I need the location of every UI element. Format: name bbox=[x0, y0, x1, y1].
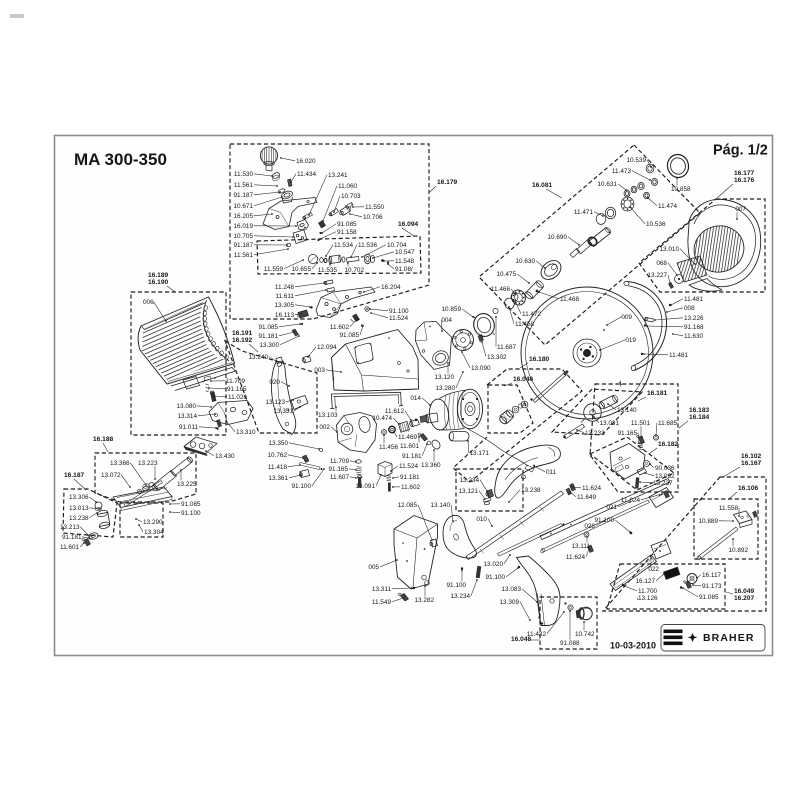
svg-text:13.140: 13.140 bbox=[617, 407, 637, 414]
svg-text:13.031: 13.031 bbox=[599, 420, 619, 427]
svg-text:10-03-2010: 10-03-2010 bbox=[610, 641, 656, 651]
svg-text:11.473: 11.473 bbox=[612, 168, 632, 175]
svg-text:12.085: 12.085 bbox=[397, 502, 417, 509]
svg-text:11.530: 11.530 bbox=[234, 171, 254, 178]
svg-text:16.094: 16.094 bbox=[398, 221, 419, 228]
svg-text:16.081: 16.081 bbox=[532, 182, 553, 189]
svg-text:10.858: 10.858 bbox=[671, 186, 691, 193]
svg-text:10.547: 10.547 bbox=[395, 249, 415, 256]
svg-text:91.165: 91.165 bbox=[328, 466, 348, 473]
svg-text:16.117: 16.117 bbox=[702, 572, 722, 579]
svg-text:10.859: 10.859 bbox=[441, 306, 461, 313]
svg-text:11.469: 11.469 bbox=[398, 434, 418, 441]
svg-text:11.709: 11.709 bbox=[226, 378, 246, 385]
svg-text:10.705: 10.705 bbox=[233, 233, 253, 240]
svg-text:11.624: 11.624 bbox=[621, 497, 641, 504]
svg-text:91.168: 91.168 bbox=[684, 324, 704, 331]
svg-text:16.187: 16.187 bbox=[64, 472, 85, 479]
svg-text:11.611: 11.611 bbox=[275, 293, 294, 300]
svg-text:16.183: 16.183 bbox=[689, 407, 710, 414]
svg-text:13.282: 13.282 bbox=[414, 597, 434, 604]
svg-text:10.702: 10.702 bbox=[344, 267, 364, 274]
svg-text:10.539: 10.539 bbox=[626, 157, 646, 164]
svg-text:13.234: 13.234 bbox=[450, 593, 470, 600]
svg-text:13.300: 13.300 bbox=[259, 342, 279, 349]
svg-text:11.607: 11.607 bbox=[330, 474, 350, 481]
svg-text:003: 003 bbox=[314, 367, 325, 374]
svg-text:11.248: 11.248 bbox=[275, 284, 295, 291]
svg-text:13.225: 13.225 bbox=[177, 481, 197, 488]
svg-text:13.280: 13.280 bbox=[435, 385, 455, 392]
svg-text:16.180: 16.180 bbox=[529, 356, 550, 363]
svg-text:13.020: 13.020 bbox=[483, 561, 503, 568]
svg-text:11.709: 11.709 bbox=[330, 458, 350, 465]
svg-text:008: 008 bbox=[684, 305, 695, 312]
svg-text:13.302: 13.302 bbox=[487, 354, 507, 361]
svg-text:13.350: 13.350 bbox=[268, 440, 288, 447]
svg-text:11.700: 11.700 bbox=[638, 588, 658, 595]
svg-text:11.434: 11.434 bbox=[297, 171, 317, 178]
svg-text:16.049: 16.049 bbox=[734, 588, 755, 595]
svg-text:11.685: 11.685 bbox=[658, 420, 678, 427]
svg-text:11.474: 11.474 bbox=[658, 203, 678, 210]
svg-text:10.703: 10.703 bbox=[341, 193, 361, 200]
svg-text:006: 006 bbox=[143, 299, 154, 306]
svg-text:10.889: 10.889 bbox=[698, 518, 718, 525]
svg-text:11.501: 11.501 bbox=[631, 420, 651, 427]
svg-text:MA 300-350: MA 300-350 bbox=[74, 150, 167, 169]
svg-text:11.624: 11.624 bbox=[582, 485, 602, 492]
svg-text:13.126: 13.126 bbox=[638, 595, 658, 602]
svg-text:11.601: 11.601 bbox=[60, 544, 80, 551]
svg-text:BRAHER: BRAHER bbox=[703, 632, 755, 644]
svg-text:11.458: 11.458 bbox=[515, 321, 535, 328]
svg-text:16.113: 16.113 bbox=[275, 312, 295, 319]
svg-text:13.092: 13.092 bbox=[655, 473, 675, 480]
svg-text:16.182: 16.182 bbox=[658, 441, 679, 448]
svg-text:16.177: 16.177 bbox=[734, 170, 755, 177]
svg-text:019: 019 bbox=[625, 337, 636, 344]
svg-text:91.085: 91.085 bbox=[337, 221, 357, 228]
svg-text:13.306: 13.306 bbox=[69, 494, 89, 501]
svg-text:16.020: 16.020 bbox=[296, 158, 316, 165]
svg-text:13.240: 13.240 bbox=[248, 354, 268, 361]
svg-text:91.187: 91.187 bbox=[233, 242, 253, 249]
svg-text:11.561: 11.561 bbox=[234, 182, 254, 189]
svg-text:91.100: 91.100 bbox=[485, 574, 505, 581]
svg-text:16.019: 16.019 bbox=[233, 223, 253, 230]
svg-text:13.226: 13.226 bbox=[684, 315, 704, 322]
svg-text:13.360: 13.360 bbox=[421, 462, 441, 469]
svg-text:10.630: 10.630 bbox=[515, 258, 535, 265]
svg-text:13.103: 13.103 bbox=[318, 412, 338, 419]
svg-text:16.190: 16.190 bbox=[148, 279, 169, 286]
svg-text:13.140: 13.140 bbox=[430, 502, 450, 509]
svg-text:16.207: 16.207 bbox=[734, 595, 755, 602]
svg-text:91.100: 91.100 bbox=[446, 582, 466, 589]
svg-text:91.011: 91.011 bbox=[179, 424, 199, 431]
svg-text:10.742: 10.742 bbox=[575, 631, 595, 638]
svg-text:91.181: 91.181 bbox=[400, 474, 420, 481]
svg-text:10.474: 10.474 bbox=[372, 415, 392, 422]
svg-text:11.456: 11.456 bbox=[379, 444, 399, 451]
svg-text:11.601: 11.601 bbox=[400, 443, 420, 450]
svg-text:022: 022 bbox=[648, 566, 659, 573]
svg-text:11.060: 11.060 bbox=[338, 183, 358, 190]
svg-text:91.100: 91.100 bbox=[291, 483, 311, 490]
svg-text:13.171: 13.171 bbox=[469, 450, 489, 457]
svg-text:10.762: 10.762 bbox=[267, 452, 287, 459]
svg-text:13.120: 13.120 bbox=[434, 374, 454, 381]
svg-text:13.090: 13.090 bbox=[471, 365, 491, 372]
svg-text:13.361: 13.361 bbox=[268, 475, 288, 482]
svg-text:90.036: 90.036 bbox=[655, 465, 675, 472]
svg-text:11.550: 11.550 bbox=[365, 204, 385, 211]
svg-text:16.204: 16.204 bbox=[381, 284, 401, 291]
svg-text:91.173: 91.173 bbox=[702, 583, 722, 590]
svg-text:007: 007 bbox=[735, 206, 746, 213]
svg-text:16.189: 16.189 bbox=[148, 272, 169, 279]
svg-text:11.630: 11.630 bbox=[684, 333, 704, 340]
svg-text:009: 009 bbox=[621, 314, 632, 321]
svg-text:16.127: 16.127 bbox=[635, 578, 655, 585]
svg-text:16.179: 16.179 bbox=[437, 179, 458, 186]
svg-text:10.690: 10.690 bbox=[547, 234, 567, 241]
svg-text:13.310: 13.310 bbox=[236, 429, 256, 436]
svg-text:10.892: 10.892 bbox=[728, 547, 748, 554]
svg-text:13.314: 13.314 bbox=[177, 413, 197, 420]
svg-text:11.524: 11.524 bbox=[389, 315, 409, 322]
svg-text:11.418: 11.418 bbox=[268, 464, 288, 471]
svg-text:91.165: 91.165 bbox=[617, 430, 637, 437]
svg-text:13.223: 13.223 bbox=[138, 460, 158, 467]
svg-text:13.238: 13.238 bbox=[521, 487, 541, 494]
svg-text:11.466: 11.466 bbox=[491, 286, 511, 293]
svg-text:10.671: 10.671 bbox=[233, 203, 253, 210]
svg-text:91.085: 91.085 bbox=[699, 594, 719, 601]
svg-text:16.181: 16.181 bbox=[647, 390, 668, 397]
svg-text:13.072: 13.072 bbox=[101, 472, 121, 479]
svg-text:13.111: 13.111 bbox=[571, 543, 590, 550]
svg-text:11.481: 11.481 bbox=[669, 352, 689, 359]
svg-text:005: 005 bbox=[368, 564, 379, 571]
svg-text:10.536: 10.536 bbox=[646, 221, 666, 228]
svg-text:10.704: 10.704 bbox=[387, 242, 407, 249]
svg-text:12.094: 12.094 bbox=[317, 344, 337, 351]
svg-text:16.188: 16.188 bbox=[93, 436, 114, 443]
svg-text:004: 004 bbox=[441, 317, 452, 324]
svg-text:13.241: 13.241 bbox=[328, 172, 348, 179]
svg-text:16.191: 16.191 bbox=[232, 330, 253, 337]
svg-text:16.106: 16.106 bbox=[738, 485, 759, 492]
svg-text:010: 010 bbox=[476, 516, 487, 523]
svg-text:11.602: 11.602 bbox=[401, 484, 421, 491]
svg-text:11.602: 11.602 bbox=[330, 324, 350, 331]
svg-text:11.612: 11.612 bbox=[385, 408, 405, 415]
svg-text:020: 020 bbox=[269, 379, 280, 386]
svg-text:002: 002 bbox=[319, 424, 330, 431]
svg-text:Pág. 1/2: Pág. 1/2 bbox=[713, 143, 768, 159]
svg-text:11.549: 11.549 bbox=[372, 599, 392, 606]
svg-text:11.524: 11.524 bbox=[399, 463, 419, 470]
svg-text:11.471: 11.471 bbox=[574, 209, 594, 216]
svg-text:13.304: 13.304 bbox=[144, 529, 164, 536]
svg-text:10.655: 10.655 bbox=[291, 266, 311, 273]
svg-text:13.238: 13.238 bbox=[69, 515, 89, 522]
svg-text:16.167: 16.167 bbox=[741, 460, 762, 467]
svg-text:13.013: 13.013 bbox=[69, 505, 89, 512]
svg-text:13.309: 13.309 bbox=[499, 599, 519, 606]
svg-text:011: 011 bbox=[546, 469, 557, 476]
svg-text:16.102: 16.102 bbox=[741, 453, 762, 460]
svg-text:91.085: 91.085 bbox=[181, 501, 201, 508]
svg-text:10.631: 10.631 bbox=[597, 181, 617, 188]
svg-text:91.100: 91.100 bbox=[389, 308, 409, 315]
svg-text:13.083: 13.083 bbox=[501, 586, 521, 593]
svg-text:91.187: 91.187 bbox=[233, 192, 253, 199]
svg-text:16.192: 16.192 bbox=[232, 337, 253, 344]
svg-text:91.085: 91.085 bbox=[258, 324, 278, 331]
svg-text:91.181: 91.181 bbox=[258, 333, 278, 340]
svg-text:91.088: 91.088 bbox=[560, 640, 580, 647]
svg-text:13.351: 13.351 bbox=[273, 408, 293, 415]
svg-text:11.535: 11.535 bbox=[318, 267, 338, 274]
svg-text:11.468: 11.468 bbox=[560, 296, 580, 303]
svg-text:11.534: 11.534 bbox=[334, 242, 354, 249]
svg-text:16.184: 16.184 bbox=[689, 414, 710, 421]
svg-text:11.649: 11.649 bbox=[577, 494, 597, 501]
svg-text:13.123: 13.123 bbox=[265, 399, 285, 406]
svg-text:16.205: 16.205 bbox=[233, 213, 253, 220]
svg-text:11.472: 11.472 bbox=[522, 311, 542, 318]
svg-text:10.475: 10.475 bbox=[496, 271, 516, 278]
svg-text:91.181: 91.181 bbox=[402, 453, 422, 460]
svg-text:91.165: 91.165 bbox=[227, 386, 247, 393]
svg-text:11.432: 11.432 bbox=[527, 631, 547, 638]
svg-text:11.536: 11.536 bbox=[358, 242, 378, 249]
svg-text:11.561: 11.561 bbox=[234, 252, 254, 259]
svg-text:11.548: 11.548 bbox=[395, 258, 415, 265]
svg-text:11.687: 11.687 bbox=[497, 344, 517, 351]
svg-text:13.080: 13.080 bbox=[176, 403, 196, 410]
svg-text:91.100: 91.100 bbox=[181, 510, 201, 517]
svg-text:91.181: 91.181 bbox=[62, 534, 82, 541]
svg-text:068: 068 bbox=[656, 260, 667, 267]
svg-text:014: 014 bbox=[410, 395, 421, 402]
svg-text:10.706: 10.706 bbox=[363, 214, 383, 221]
svg-text:13.091: 13.091 bbox=[355, 483, 375, 490]
svg-text:91.08/: 91.08/ bbox=[395, 266, 413, 273]
svg-text:13.290: 13.290 bbox=[143, 519, 163, 526]
svg-text:13.366: 13.366 bbox=[110, 460, 130, 467]
svg-text:13.237: 13.237 bbox=[653, 480, 673, 487]
svg-text:11.481: 11.481 bbox=[684, 296, 704, 303]
svg-text:11.558: 11.558 bbox=[719, 505, 739, 512]
svg-text:13.430: 13.430 bbox=[215, 453, 235, 460]
svg-text:13.227: 13.227 bbox=[647, 272, 667, 279]
svg-text:16.176: 16.176 bbox=[734, 177, 755, 184]
svg-text:11.026: 11.026 bbox=[228, 394, 248, 401]
svg-text:13.305: 13.305 bbox=[274, 302, 294, 309]
svg-text:13.311: 13.311 bbox=[372, 586, 392, 593]
svg-text:11.624: 11.624 bbox=[566, 554, 586, 561]
svg-text:91.158: 91.158 bbox=[337, 229, 357, 236]
svg-text:13.233: 13.233 bbox=[585, 430, 605, 437]
svg-text:91.085: 91.085 bbox=[339, 332, 359, 339]
svg-text:11.559: 11.559 bbox=[264, 266, 284, 273]
svg-text:028: 028 bbox=[584, 523, 595, 530]
svg-text:13.213: 13.213 bbox=[60, 524, 80, 531]
svg-text:13.121: 13.121 bbox=[458, 488, 478, 495]
svg-text:13.010: 13.010 bbox=[659, 246, 679, 253]
svg-text:13.234: 13.234 bbox=[459, 477, 479, 484]
svg-text:021: 021 bbox=[606, 504, 617, 511]
